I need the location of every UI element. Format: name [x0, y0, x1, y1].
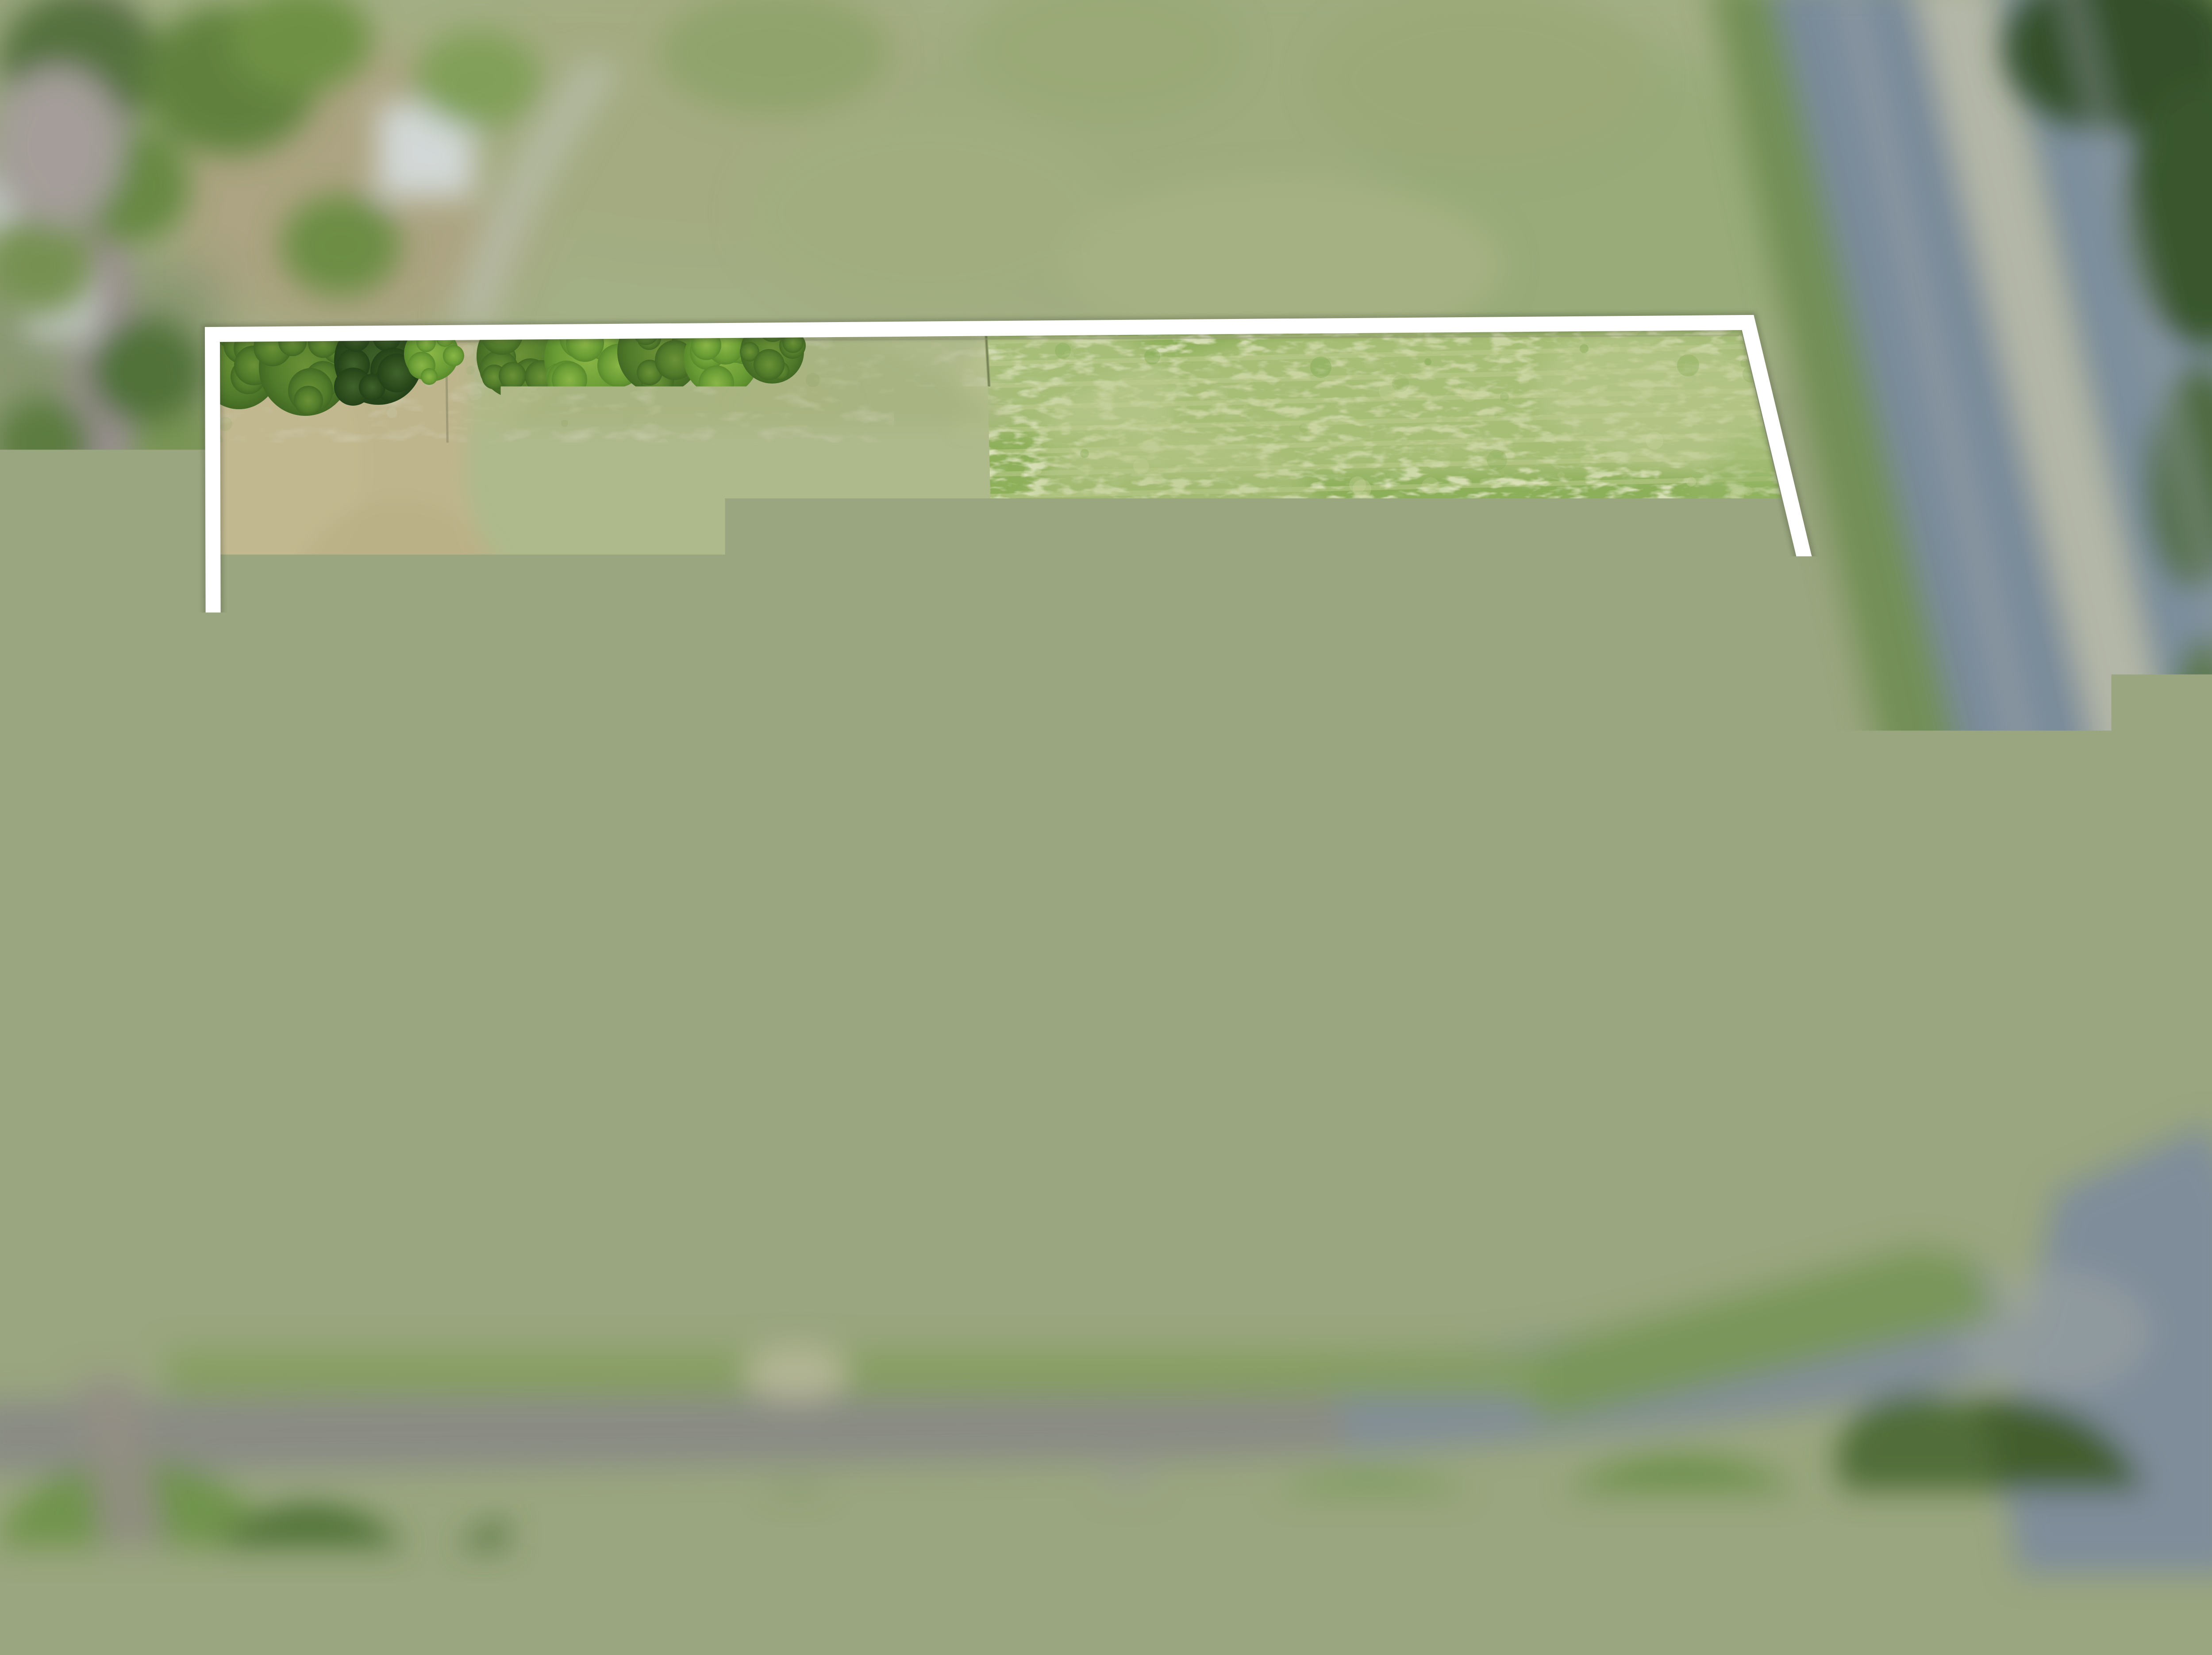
svg-text:3.98 Acres: 3.98 Acres	[1220, 822, 1533, 903]
svg-text:(approx): (approx)	[1293, 897, 1465, 948]
